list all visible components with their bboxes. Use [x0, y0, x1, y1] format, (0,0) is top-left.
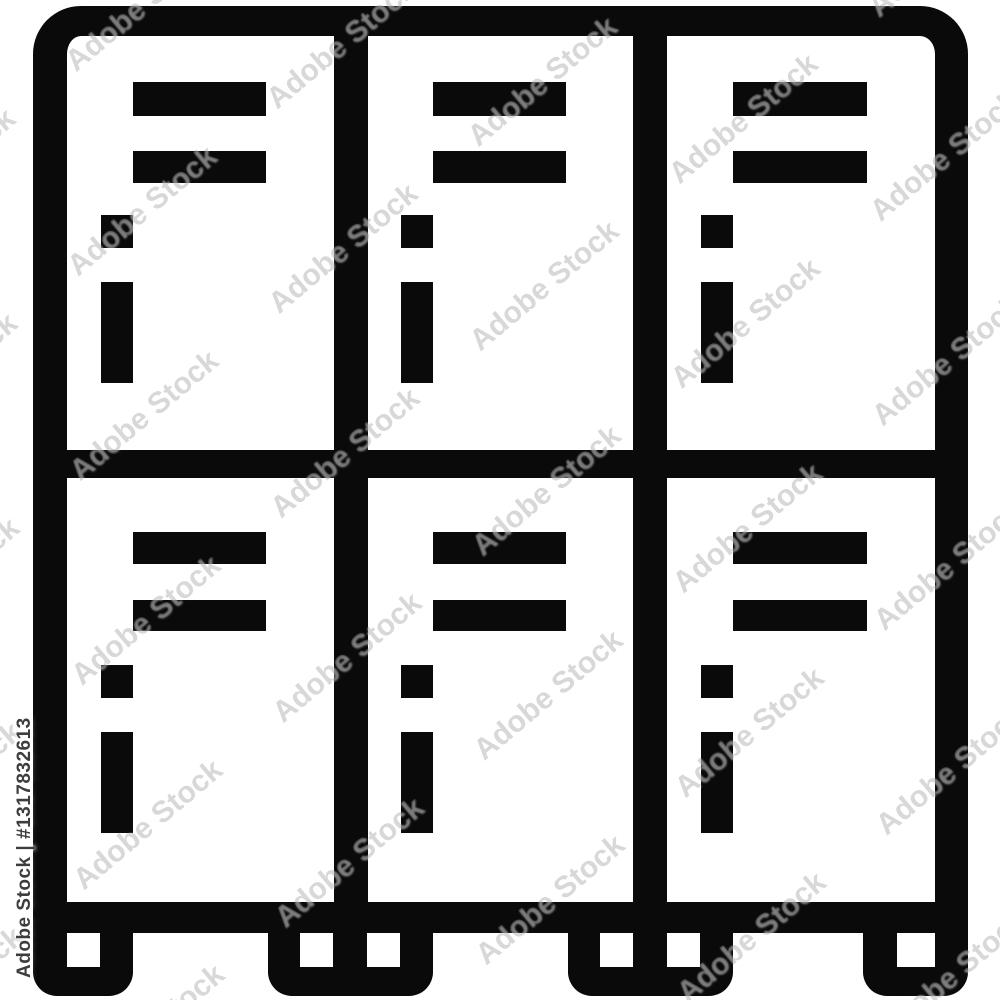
vent-slot: [133, 532, 266, 564]
handle-bar: [101, 282, 133, 383]
handle-bar: [401, 282, 433, 383]
lock-square: [401, 665, 433, 698]
vent-slot: [433, 151, 566, 183]
locker-foot-center-left: [268, 933, 433, 996]
watermark-credit: Adobe Stock | #1317832613: [14, 717, 36, 978]
vent-slot: [133, 82, 266, 116]
locker-foot-center-right: [568, 933, 733, 996]
vent-slot: [433, 600, 566, 631]
lock-square: [101, 215, 133, 248]
vent-slot: [433, 532, 566, 564]
foot-notch: [367, 933, 400, 967]
vent-slot: [433, 82, 566, 116]
locker-row-divider: [67, 450, 935, 478]
stock-preview-image: Adobe StockAdobe StockAdobe StockAdobe S…: [0, 0, 1000, 1000]
vent-slot: [733, 532, 867, 564]
foot-notch: [67, 933, 100, 967]
handle-bar: [701, 282, 733, 383]
lock-square: [401, 215, 433, 248]
lockers-icon: [0, 0, 1000, 1000]
vent-slot: [133, 600, 266, 631]
handle-bar: [101, 732, 133, 833]
foot-notch: [897, 933, 935, 967]
lock-square: [701, 665, 733, 698]
foot-notch: [300, 933, 333, 967]
handle-bar: [701, 732, 733, 833]
vent-slot: [733, 82, 867, 116]
handle-bar: [401, 732, 433, 833]
locker-foot-left: [33, 933, 133, 996]
lock-square: [701, 215, 733, 248]
vent-slot: [733, 600, 867, 631]
locker-foot-right: [863, 933, 968, 996]
foot-notch: [667, 933, 700, 967]
lock-square: [101, 665, 133, 698]
vent-slot: [733, 151, 867, 183]
foot-notch: [600, 933, 633, 967]
vent-slot: [133, 151, 266, 183]
